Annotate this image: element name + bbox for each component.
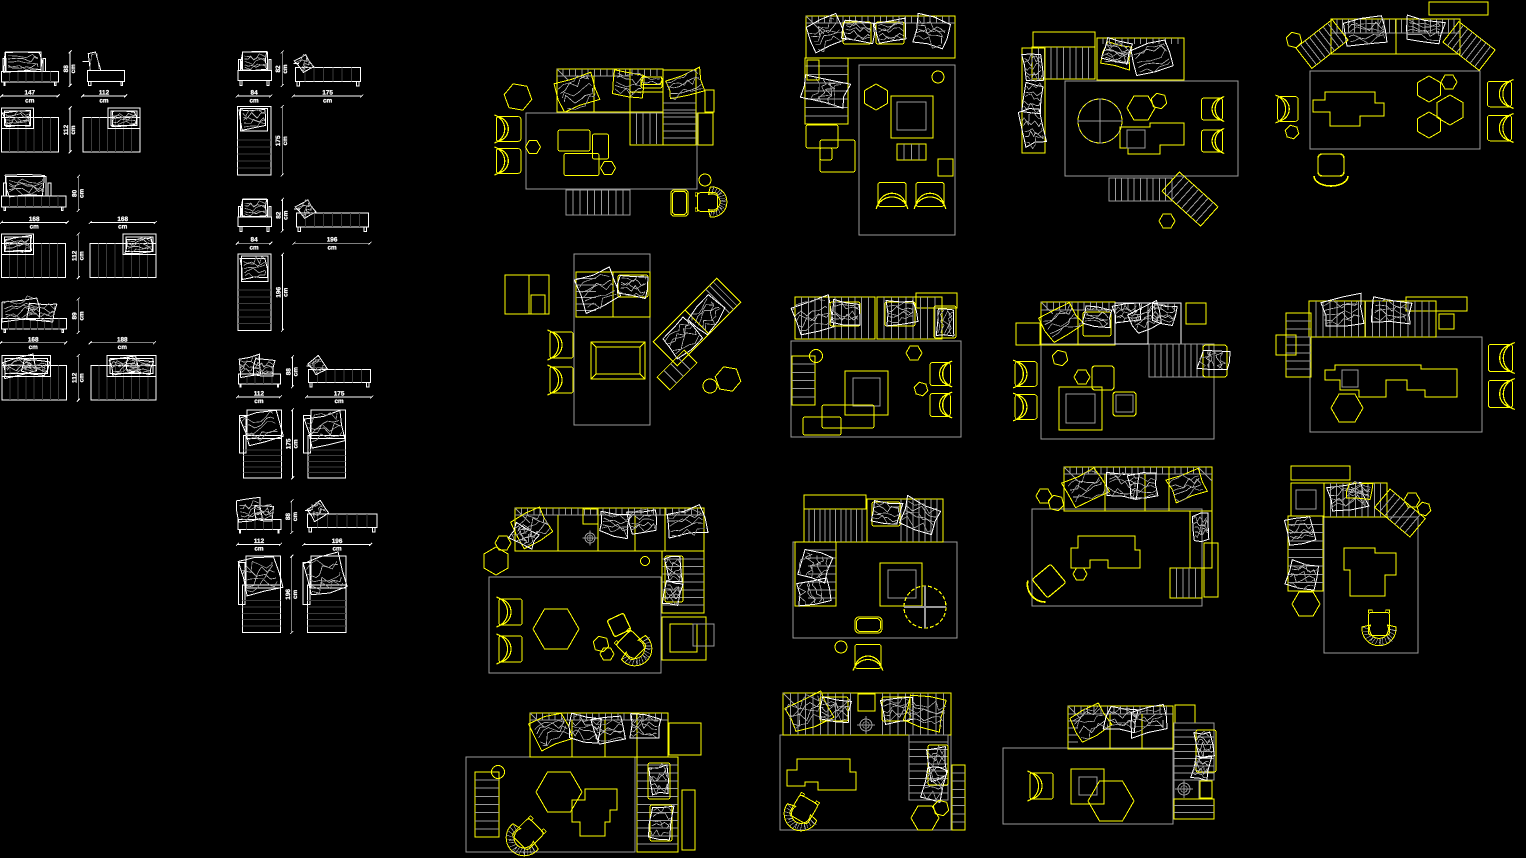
svg-text:175: 175 — [286, 438, 293, 449]
svg-text:cm: cm — [118, 344, 128, 351]
svg-text:cm: cm — [99, 97, 109, 104]
svg-text:88: 88 — [286, 368, 293, 376]
svg-text:84: 84 — [251, 237, 259, 244]
svg-text:168: 168 — [117, 216, 128, 223]
svg-text:cm: cm — [292, 589, 299, 599]
svg-text:cm: cm — [30, 224, 40, 231]
svg-text:88: 88 — [285, 513, 292, 521]
svg-text:112: 112 — [254, 390, 265, 397]
svg-text:cm: cm — [293, 439, 300, 449]
svg-text:175: 175 — [322, 90, 333, 97]
svg-text:112: 112 — [71, 250, 78, 261]
svg-text:cm: cm — [70, 125, 77, 135]
svg-text:84: 84 — [251, 90, 259, 97]
svg-text:cm: cm — [249, 245, 259, 252]
svg-text:88: 88 — [63, 65, 70, 73]
svg-text:147: 147 — [24, 90, 35, 97]
svg-text:cm: cm — [282, 64, 289, 74]
svg-text:168: 168 — [29, 216, 40, 223]
svg-text:196: 196 — [327, 237, 338, 244]
svg-text:cm: cm — [282, 210, 289, 220]
svg-text:cm: cm — [334, 398, 344, 405]
svg-text:cm: cm — [292, 512, 299, 522]
svg-text:cm: cm — [78, 188, 85, 198]
svg-text:cm: cm — [78, 311, 85, 321]
svg-text:196: 196 — [285, 589, 292, 600]
svg-text:cm: cm — [282, 136, 289, 146]
svg-text:82: 82 — [275, 211, 282, 219]
svg-text:196: 196 — [275, 287, 282, 298]
svg-text:175: 175 — [275, 135, 282, 146]
svg-text:112: 112 — [63, 124, 70, 135]
svg-text:168: 168 — [28, 336, 39, 343]
svg-text:cm: cm — [78, 373, 85, 383]
svg-text:112: 112 — [71, 372, 78, 383]
svg-text:188: 188 — [117, 336, 128, 343]
svg-text:112: 112 — [99, 90, 110, 97]
svg-text:89: 89 — [71, 312, 78, 320]
svg-text:cm: cm — [254, 546, 264, 553]
svg-text:cm: cm — [70, 64, 77, 74]
svg-text:cm: cm — [254, 398, 264, 405]
svg-text:cm: cm — [323, 97, 333, 104]
svg-text:196: 196 — [332, 538, 343, 545]
svg-text:cm: cm — [29, 344, 39, 351]
svg-text:175: 175 — [334, 390, 345, 397]
svg-text:80: 80 — [71, 189, 78, 197]
svg-text:cm: cm — [293, 367, 300, 377]
svg-text:cm: cm — [78, 251, 85, 261]
svg-text:cm: cm — [332, 546, 342, 553]
svg-text:cm: cm — [282, 287, 289, 297]
svg-text:cm: cm — [25, 97, 35, 104]
svg-text:112: 112 — [254, 538, 265, 545]
svg-text:cm: cm — [118, 224, 128, 231]
svg-text:82: 82 — [275, 65, 282, 73]
svg-text:cm: cm — [249, 97, 259, 104]
svg-text:cm: cm — [327, 245, 337, 252]
